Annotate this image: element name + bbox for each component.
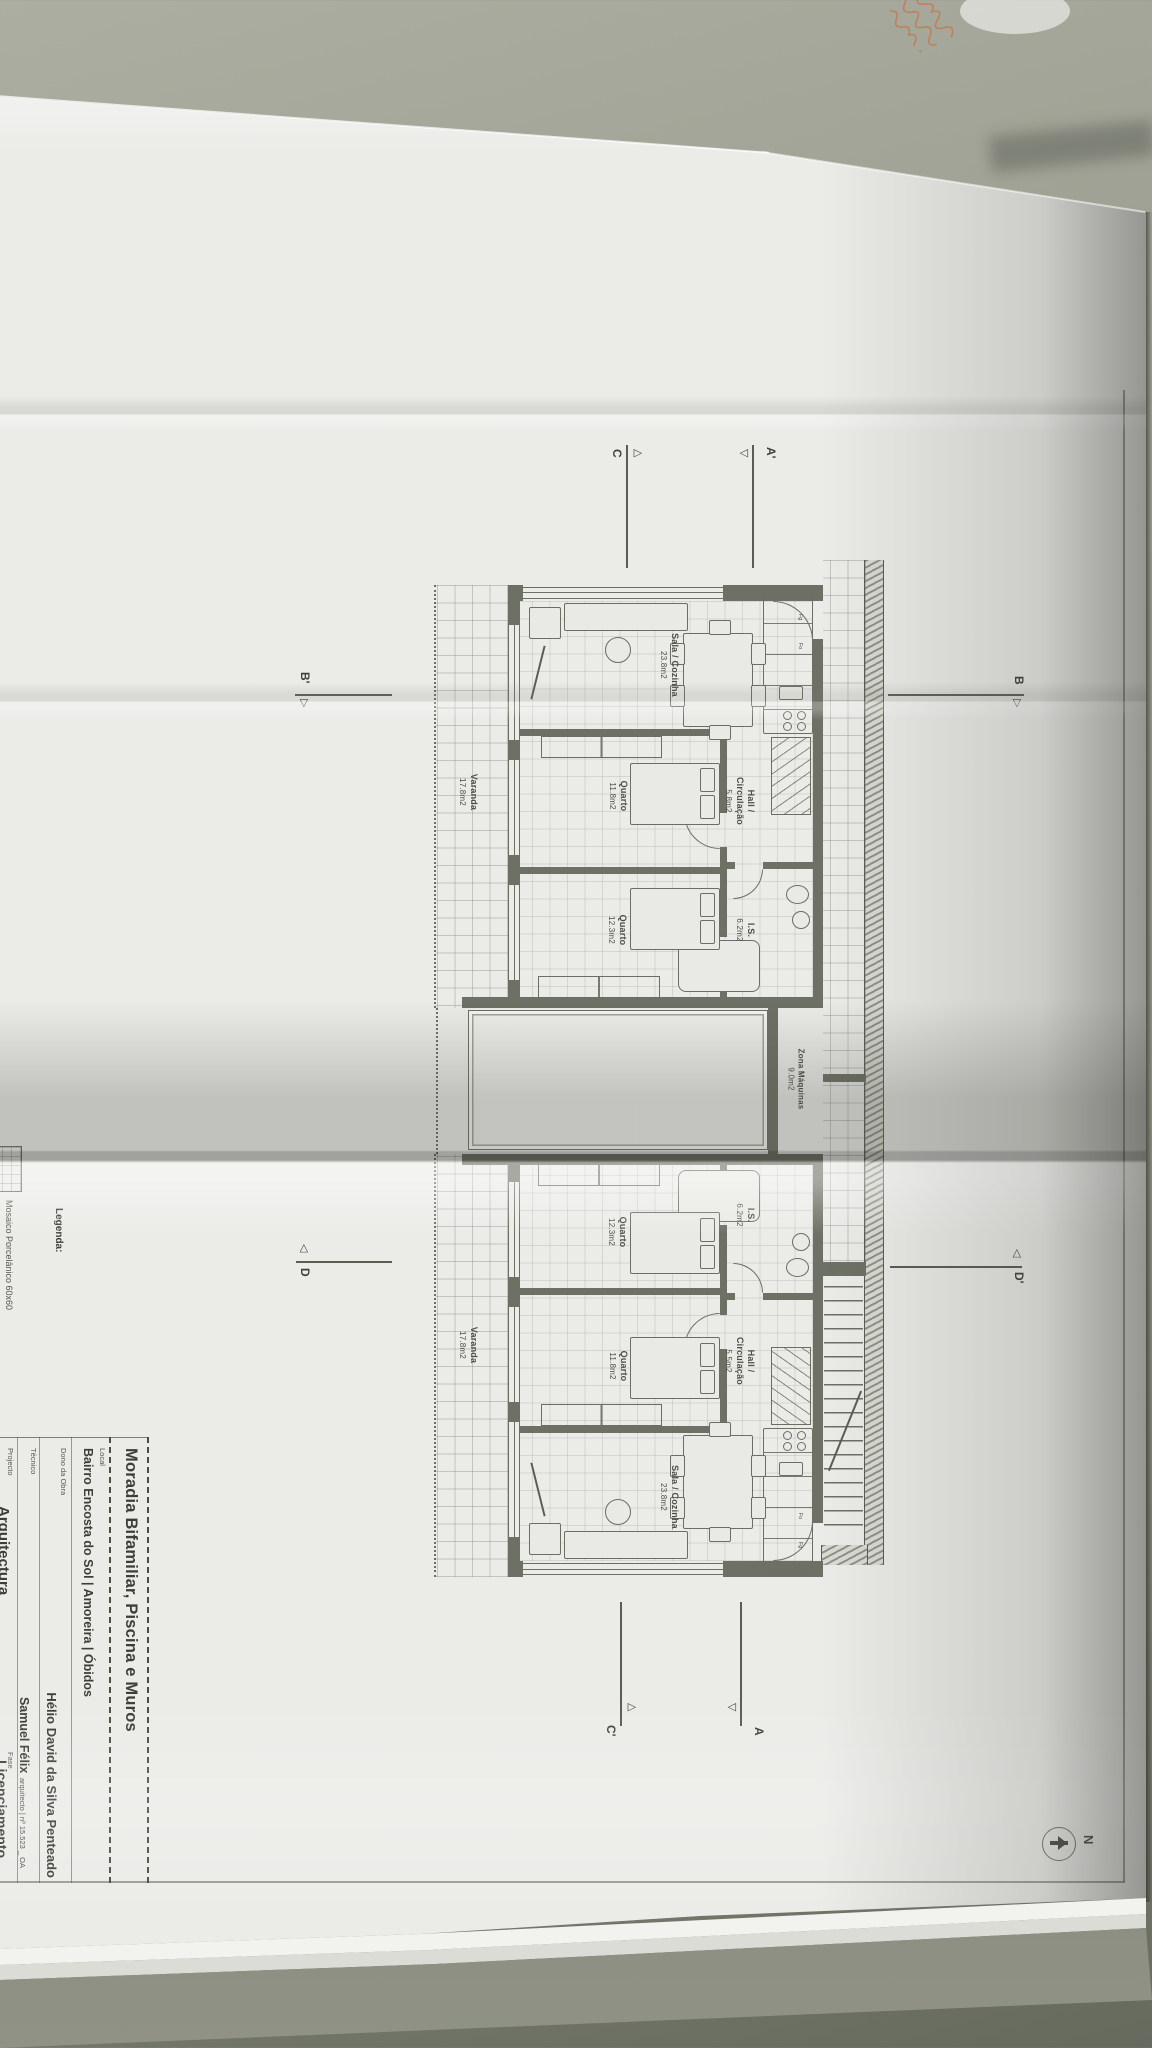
sofa — [564, 603, 688, 631]
oven-symbol-label: Fo — [797, 1513, 803, 1519]
room-label-sala-b: Sala / Cozinha23.8m2 — [658, 1462, 680, 1532]
sheet-border-right — [0, 1881, 1125, 1883]
sheet-border-top — [1124, 390, 1126, 1882]
section-marker-c: C — [610, 449, 624, 458]
field-value-projecto: Arquitectura — [0, 1506, 12, 1595]
walkway-gate-wall — [823, 1074, 866, 1082]
section-arrow-icon: ◁ — [298, 1244, 311, 1252]
room-label-quarto1-b: Quarto11.8m2 — [607, 1351, 629, 1382]
exterior-stairs — [824, 1286, 863, 1538]
north-arrow: N — [1034, 1826, 1094, 1860]
north-label: N — [1081, 1835, 1096, 1844]
section-marker-c-prime: C' — [604, 1725, 618, 1737]
field-value-dono-da-obra: Hélio David da Silva Penteado — [44, 1448, 59, 1878]
section-line-c — [627, 445, 629, 568]
section-marker-b: B — [1012, 676, 1026, 685]
section-marker-b-prime: B' — [298, 672, 312, 684]
field-value-local: Bairro Encosta do Sol | Amoreira | Óbido… — [81, 1448, 95, 1880]
section-line-b — [888, 694, 1024, 696]
room-label-zona-maquinas: Zona Máquinas9.0m2 — [786, 1034, 805, 1124]
section-marker-d-prime: D' — [1012, 1272, 1026, 1284]
toilet — [786, 885, 809, 904]
walkway-tiles — [823, 560, 866, 1262]
pool-wall — [768, 997, 778, 1160]
section-arrow-icon: △ — [626, 1703, 639, 1711]
title-block-rule — [109, 1437, 111, 1883]
wardrobe — [541, 736, 662, 758]
section-line-d — [296, 1261, 392, 1263]
section-marker-d: D — [298, 1268, 312, 1277]
stair-wall — [823, 1262, 866, 1276]
section-arrow-icon: ▽ — [738, 449, 751, 457]
section-line-c-prime — [621, 1602, 623, 1726]
room-label-is-b: I.S.6.2m2 — [734, 1203, 756, 1226]
field-label-local: Local — [98, 1448, 107, 1466]
section-line-b-prime — [295, 694, 392, 696]
sheet-title: Moradia Bifamiliar, Piscina e Muros — [121, 1448, 140, 1732]
wardrobe — [538, 976, 660, 998]
drawing-sheet: Sala / Cozinha23.8m2 Hall / Circulação5.… — [0, 0, 1152, 2048]
field-label-dono-da-obra: Dono da Obra — [59, 1448, 68, 1495]
coffee-table — [605, 637, 631, 663]
room-label-sala-a: Sala / Cozinha23.8m2 — [658, 630, 680, 700]
swimming-pool — [468, 1010, 768, 1150]
room-label-varanda-a: Varanda17.8m2 — [457, 774, 479, 810]
room-label-quarto2-a: Quarto12.3m2 — [606, 915, 628, 946]
room-label-is-a: I.S.6.2m2 — [734, 918, 756, 941]
legend-swatch-tile-icon — [0, 1146, 22, 1192]
room-label-quarto2-b: Quarto12.3m2 — [606, 1217, 628, 1248]
field-value-fase: Licenciamento — [0, 1760, 10, 1858]
room-label-hall-a: Hall / Circulação5.8m2 — [724, 775, 756, 827]
washbasin — [792, 911, 810, 929]
section-line-a-prime — [753, 445, 755, 568]
title-block-rule — [147, 1437, 149, 1883]
oven-symbol-label: Fo — [797, 643, 803, 649]
fridge-symbol-label: Fg — [797, 614, 803, 620]
section-arrow-icon: ▷ — [1011, 699, 1024, 707]
section-line-d-prime — [890, 1266, 1022, 1268]
boundary-wall-end — [821, 1545, 868, 1565]
section-arrow-icon: ▷ — [298, 699, 311, 707]
section-arrow-icon: ▽ — [726, 1703, 739, 1711]
boundary-wall — [864, 560, 884, 1565]
legend-item: Mosaico Porcelânico 60x60 — [4, 1200, 14, 1440]
room-label-quarto1-a: Quarto11.8m2 — [607, 781, 629, 812]
section-arrow-icon: △ — [632, 449, 645, 457]
section-line-a — [741, 1602, 743, 1726]
photo-of-floor-plan: { "scene": { "description": "Photo of a … — [0, 0, 1152, 2048]
room-label-hall-b: Hall / Circulação5.5m2 — [724, 1335, 756, 1387]
section-marker-a: A — [752, 1727, 766, 1736]
floor-plan-drawing: Sala / Cozinha23.8m2 Hall / Circulação5.… — [0, 0, 1152, 1890]
field-label-projecto: Projecto — [6, 1448, 15, 1476]
hall-closet — [771, 737, 811, 815]
room-label-varanda-b: Varanda17.8m2 — [457, 1327, 479, 1363]
north-arrowhead-icon — [1058, 1836, 1074, 1850]
section-marker-a-prime: A' — [764, 447, 778, 459]
kitchen-sink — [779, 686, 803, 700]
legend-heading: Legenda: — [53, 1208, 64, 1252]
paper-right-edge-shadow — [1146, 212, 1152, 1902]
armchair — [529, 607, 561, 639]
dining-table — [683, 633, 753, 727]
section-arrow-icon: ◁ — [1011, 1249, 1024, 1257]
fridge-symbol-label: Fg — [797, 1542, 803, 1548]
